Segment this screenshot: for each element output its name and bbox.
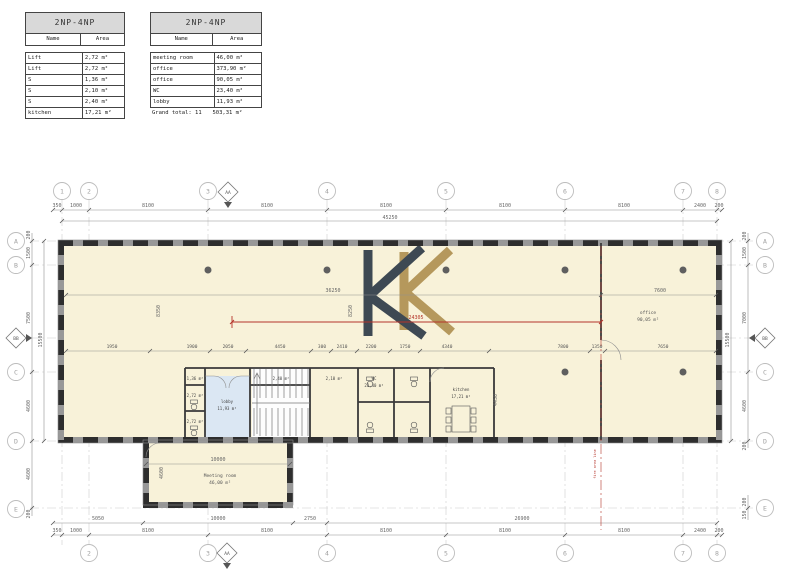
- dim-label: 36250: [325, 288, 340, 294]
- dim-label: 4600: [26, 468, 32, 480]
- grid-bubble-label: 5: [444, 188, 448, 196]
- dim-label: 8100: [261, 203, 273, 209]
- col-area-header: Area: [81, 34, 124, 45]
- name-cell: Lift: [26, 64, 83, 74]
- dim-label: 1750: [400, 344, 411, 350]
- grid-bubble-label: E: [14, 506, 18, 514]
- dim-total-label: 45250: [382, 215, 397, 221]
- room-label: lobby: [221, 399, 234, 404]
- dim-label: 8100: [380, 203, 392, 209]
- dim-label: 200: [714, 528, 723, 534]
- dim-label: 8100: [499, 528, 511, 534]
- name-cell: S: [26, 75, 83, 85]
- grid-bubble-label: 8: [715, 188, 719, 196]
- dim-label: 150: [742, 510, 748, 519]
- area-cell: 46,00 m²: [215, 53, 262, 63]
- table-header: Name Area: [25, 34, 125, 46]
- area-cell: 2,72 m²: [83, 64, 124, 74]
- dim-label: 300: [318, 344, 326, 350]
- dim-label: 8100: [261, 528, 273, 534]
- dim-label: 8100: [499, 203, 511, 209]
- room-area-label: 2,72 m²: [187, 419, 204, 424]
- table-row: kitchen17,21 m²: [26, 108, 124, 118]
- table-row: Lift2,72 m²: [26, 64, 124, 75]
- table-row: office373,90 m²: [151, 64, 261, 75]
- dim-label: 1500: [742, 247, 748, 259]
- area-cell: 2,10 m²: [83, 86, 124, 96]
- room-area-label: 46,00 m²: [209, 480, 231, 486]
- section-marker-label: BB: [13, 336, 19, 342]
- dimension-strip-top: 350 1000 8100 8100 8100 8100 8100 2400 2…: [51, 203, 724, 223]
- table-body: Lift2,72 m² Lift2,72 m² S1,36 m² S2,10 m…: [25, 52, 125, 119]
- grid-bubble-label: D: [14, 438, 18, 446]
- area-cell: 17,21 m²: [83, 108, 124, 118]
- dim-label: 1000: [70, 528, 82, 534]
- name-cell: kitchen: [26, 108, 83, 118]
- dim-label: 4340: [442, 344, 453, 350]
- grid-bubble-label: 1: [60, 188, 64, 196]
- table-row: meeting room46,00 m²: [151, 53, 261, 64]
- dimension-strip-bottom: 5050 10000 2750 26900 350 1000 8100 8100…: [51, 516, 724, 537]
- dim-label: 8100: [380, 528, 392, 534]
- grid-bubble-label: 6: [563, 550, 567, 558]
- section-marker-label: AA: [224, 551, 230, 557]
- col-area-header: Area: [213, 34, 262, 45]
- dim-label: 2400: [694, 528, 706, 534]
- dim-label: 4600: [159, 467, 165, 479]
- dim-label: 200: [742, 497, 748, 506]
- grid-bubble-label: B: [763, 262, 767, 270]
- grid-bubble-label: A: [14, 238, 18, 246]
- table-row: S1,36 m²: [26, 75, 124, 86]
- dim-label: 2410: [337, 344, 348, 350]
- area-cell: 23,40 m²: [215, 86, 262, 96]
- grid-bubble-label: 3: [206, 188, 210, 196]
- room-area-label: 17,21 m²: [451, 394, 470, 399]
- grid-bubble-label: E: [763, 505, 767, 513]
- room-area-label: 23,40 m²: [364, 383, 383, 388]
- dim-label: 7800: [558, 344, 569, 350]
- name-cell: office: [151, 75, 215, 85]
- room-area-label: 2,40 m²: [273, 376, 290, 381]
- grid-bubble-label: D: [763, 438, 767, 446]
- section-marker-label: BB: [762, 336, 768, 342]
- dim-label: 4600: [742, 400, 748, 412]
- dim-label: 2750: [304, 516, 316, 522]
- grid-bubble-label: 5: [444, 550, 448, 558]
- grid-bubble-label: 4: [325, 188, 329, 196]
- dim-label: 200: [26, 230, 32, 239]
- dim-label: 4450: [493, 394, 499, 406]
- grid-bubble-label: 2: [87, 550, 91, 558]
- dim-label: 4600: [26, 400, 32, 412]
- table-row: S2,10 m²: [26, 86, 124, 97]
- dim-total-label: 15500: [725, 332, 731, 347]
- grid-bubble-label: 2: [87, 188, 91, 196]
- dim-label: 2200: [366, 344, 377, 350]
- table-row: office90,05 m²: [151, 75, 261, 86]
- dim-label: 350: [52, 203, 61, 209]
- floor-plan-page: 2NP-4NP Name Area Lift2,72 m² Lift2,72 m…: [0, 0, 800, 573]
- dim-label: 200: [742, 231, 748, 240]
- dim-label: 10000: [210, 516, 225, 522]
- dim-label: 8250: [348, 305, 354, 317]
- room-label: kitchen: [453, 387, 470, 392]
- dim-label: 8350: [156, 305, 162, 317]
- table-title: 2NP-4NP: [25, 12, 125, 34]
- dim-label: 350: [52, 528, 61, 534]
- dim-label: 26900: [514, 516, 529, 522]
- room-area-label: 1,36 m²: [187, 376, 204, 381]
- dim-label: 200: [26, 509, 32, 518]
- dim-label: 1950: [107, 344, 118, 350]
- dim-label: 1900: [187, 344, 198, 350]
- area-cell: 2,72 m²: [83, 53, 124, 63]
- table-row: lobby11,93 m²: [151, 97, 261, 107]
- name-cell: lobby: [151, 97, 215, 107]
- dim-label: 7600: [654, 288, 666, 294]
- dim-label: 1500: [26, 247, 32, 259]
- dim-label: 2400: [694, 203, 706, 209]
- col-name-header: Name: [26, 34, 81, 45]
- table-header: Name Area: [150, 34, 262, 46]
- grid-bubble-label: 7: [681, 188, 685, 196]
- area-cell: 1,36 m²: [83, 75, 124, 85]
- dim-label: 2050: [223, 344, 234, 350]
- dim-total-label: 15500: [38, 332, 44, 347]
- dim-label: 8100: [618, 528, 630, 534]
- dim-label: 200: [714, 203, 723, 209]
- table-title: 2NP-4NP: [150, 12, 262, 34]
- area-cell: 11,93 m²: [215, 97, 262, 107]
- grid-bubbles-bottom: 2 3 4 5 6 7 8 AA: [81, 543, 726, 569]
- grid-bubble-label: B: [14, 262, 18, 270]
- col-name-header: Name: [151, 34, 213, 45]
- dimension-strip-right: 200 1500 7000 4600 200 200 150 15500: [725, 231, 750, 520]
- dim-label: 10000: [210, 457, 225, 463]
- dim-label: 4450: [275, 344, 286, 350]
- room-area-label: 90,05 m²: [637, 317, 659, 323]
- dim-label: 8100: [142, 528, 154, 534]
- red-dim-label: 24305: [408, 315, 423, 321]
- dim-label: 7500: [26, 312, 32, 324]
- grid-bubble-label: 6: [563, 188, 567, 196]
- table-footer: Grand total: 11 503,31 m²: [150, 108, 262, 119]
- room-label: Meeting room: [204, 473, 237, 479]
- room-label: WC: [372, 376, 377, 381]
- table-row: S2,40 m²: [26, 97, 124, 108]
- section-marker-label: AA: [225, 190, 231, 196]
- room-area-label: 2,72 m²: [187, 393, 204, 398]
- table-row: WC23,40 m²: [151, 86, 261, 97]
- fire-line-note: fire area line: [593, 449, 597, 479]
- name-cell: S: [26, 97, 83, 107]
- name-cell: office: [151, 64, 215, 74]
- dim-label: 7650: [658, 344, 669, 350]
- name-cell: Lift: [26, 53, 83, 63]
- dim-label: 1000: [70, 203, 82, 209]
- grid-bubbles-right: A B C D E BB: [749, 233, 775, 517]
- area-table-right: 2NP-4NP Name Area meeting room46,00 m² o…: [150, 12, 262, 119]
- dimension-strip-left: 200 1500 7500 4600 4600 200 15500: [26, 230, 46, 518]
- dim-label: 8100: [618, 203, 630, 209]
- name-cell: meeting room: [151, 53, 215, 63]
- dim-label: 7000: [742, 312, 748, 324]
- grand-total-area: 503,31 m²: [213, 108, 243, 119]
- grid-bubble-label: 7: [681, 550, 685, 558]
- area-table-left: 2NP-4NP Name Area Lift2,72 m² Lift2,72 m…: [25, 12, 125, 119]
- table-row: Lift2,72 m²: [26, 53, 124, 64]
- grid-bubble-label: 8: [715, 550, 719, 558]
- room-area-label: 2,10 m²: [326, 376, 343, 381]
- area-cell: 2,40 m²: [83, 97, 124, 107]
- grid-bubble-label: C: [763, 369, 767, 377]
- dim-label: 8100: [142, 203, 154, 209]
- grid-bubble-label: C: [14, 369, 18, 377]
- grid-bubble-label: A: [763, 238, 767, 246]
- room-label: office: [640, 310, 657, 316]
- name-cell: WC: [151, 86, 215, 96]
- room-area-label: 11,93 m²: [217, 406, 236, 411]
- grand-total-label: Grand total: 11: [152, 108, 213, 119]
- name-cell: S: [26, 86, 83, 96]
- grid-bubble-label: 3: [206, 550, 210, 558]
- area-cell: 373,90 m²: [215, 64, 262, 74]
- dim-label: 200: [742, 441, 748, 450]
- table-body: meeting room46,00 m² office373,90 m² off…: [150, 52, 262, 108]
- dim-label: 5050: [92, 516, 104, 522]
- area-cell: 90,05 m²: [215, 75, 262, 85]
- grid-bubble-label: 4: [325, 550, 329, 558]
